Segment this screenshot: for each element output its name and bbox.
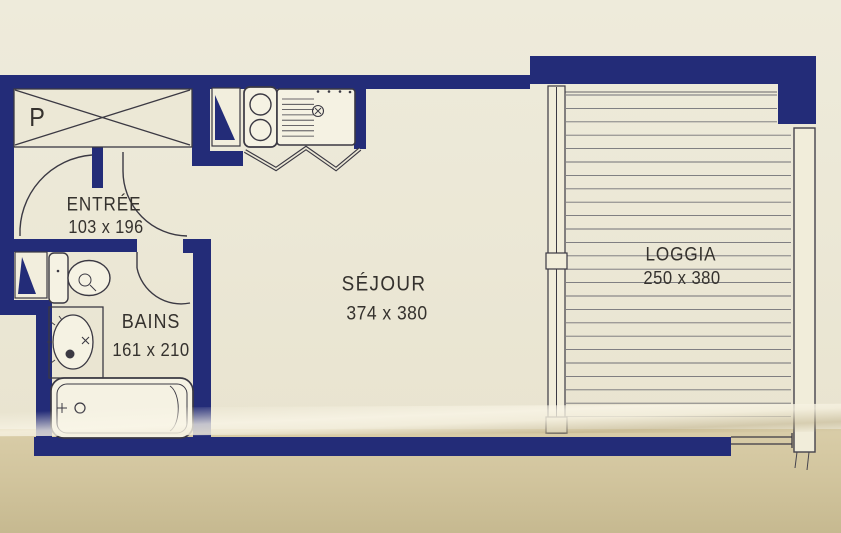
bains-room-dims: 161 x 210 — [112, 341, 189, 360]
kitchen-sink-icon — [277, 89, 355, 145]
entree-room-dims: 103 x 196 — [68, 218, 143, 236]
sejour-room-dims: 374 x 380 — [346, 304, 427, 324]
wall-closet-arm — [210, 151, 243, 166]
loggia-railing-right — [794, 128, 815, 470]
placard-label: P — [29, 104, 45, 130]
wall-corner-right — [778, 56, 816, 124]
stove-icon — [244, 87, 277, 147]
bains-room-label: BAINS — [122, 312, 181, 332]
wall-top-loggia — [530, 56, 816, 84]
wall-bains-top — [14, 239, 137, 252]
loggia-room-dims: 250 x 380 — [643, 269, 720, 288]
floor-plan-page: P ENTRÉE 103 x 196 BAINS 161 x 210 SÉJOU… — [0, 0, 841, 533]
wall-bains-sejour — [193, 239, 211, 437]
wall-bottom — [34, 437, 731, 456]
washbasin-icon — [47, 307, 103, 378]
loggia-railing-bottom — [731, 433, 792, 448]
bathtub-icon — [51, 378, 193, 438]
wall-left — [0, 75, 14, 315]
wall-entree-stub — [92, 147, 103, 188]
bains-door-swing — [137, 268, 190, 304]
entree-room-label: ENTRÉE — [67, 196, 142, 215]
sejour-room-label: SÉJOUR — [342, 274, 427, 295]
loggia-room-label: LOGGIA — [646, 246, 717, 265]
folding-door-icon — [245, 148, 360, 169]
toilet-icon — [49, 253, 110, 303]
wall-closet-pier — [192, 89, 210, 166]
